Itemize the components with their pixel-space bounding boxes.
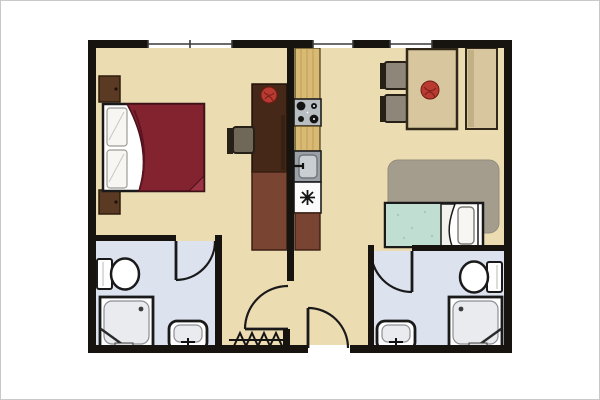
kitchen-sink-icon: [294, 151, 321, 182]
single-bed: [385, 203, 483, 247]
desk-chair-seat: [233, 127, 254, 153]
double-bed: [103, 104, 204, 191]
wall-left: [88, 40, 96, 353]
floor-plan-image: [0, 0, 600, 400]
blanket-speckle-3: [424, 211, 426, 213]
wall-entry-stub: [283, 329, 290, 345]
shower-left-drain: [139, 307, 144, 312]
desk-edge-shadow: [281, 115, 285, 170]
wall-bathroom-right-left: [368, 245, 374, 345]
burner-1: [297, 102, 306, 111]
single-bed-pillow: [458, 207, 474, 244]
wall-bottom-right: [350, 345, 512, 353]
desk-lower: [252, 172, 287, 250]
window-kitchen: [313, 40, 353, 48]
blanket-speckle-5: [431, 235, 433, 237]
nightstand-bottom-knob-icon: [114, 200, 117, 203]
stove-icon: [294, 99, 321, 126]
window-living: [148, 40, 232, 48]
kitchen-run: [294, 48, 321, 250]
pillow-lower: [107, 150, 127, 188]
toilet-left-bowl: [111, 259, 139, 290]
floor-plan-canvas: [1, 1, 599, 399]
blanket-speckle-4: [403, 237, 405, 239]
room-bedroom-right: [385, 160, 499, 247]
wall-right: [504, 40, 512, 353]
toilet-right-bowl: [460, 262, 488, 293]
burner-dot-2: [313, 118, 315, 120]
wall-kitchen-divider: [287, 48, 294, 281]
toilet-right-icon: [460, 262, 502, 293]
wall-bathroom-right-top: [412, 245, 504, 251]
shower-right-drain: [459, 307, 464, 312]
asterisk-symbol-icon: [300, 190, 315, 205]
stove-knob-dot: [307, 112, 309, 114]
dining-chair-2-seat: [385, 95, 407, 122]
shower-left-icon: [100, 297, 153, 348]
appliance-icon: [294, 182, 321, 213]
pillow-upper: [107, 108, 127, 146]
toilet-left-icon: [97, 259, 139, 290]
burner-3: [298, 116, 304, 122]
sideboard-shadow-strip: [468, 50, 474, 127]
shower-right-icon: [449, 297, 502, 348]
wall-bottom-left: [88, 345, 308, 353]
nightstand-top-knob-icon: [114, 87, 117, 90]
window-dining: [390, 40, 432, 48]
blanket-speckle-1: [397, 214, 399, 216]
dining-chair-1-seat: [385, 62, 407, 89]
wall-bathroom-left-right: [215, 235, 222, 345]
wall-bathroom-left-top: [96, 235, 176, 241]
kitchen-counter-lower: [295, 213, 320, 250]
blanket-speckle-2: [411, 227, 413, 229]
plant-on-table-icon: [421, 81, 439, 99]
table-plant-pom: [421, 81, 439, 99]
single-bed-blanket: [386, 204, 448, 246]
plant-on-desk-icon: [261, 87, 277, 103]
burner-dot-1: [313, 105, 315, 107]
